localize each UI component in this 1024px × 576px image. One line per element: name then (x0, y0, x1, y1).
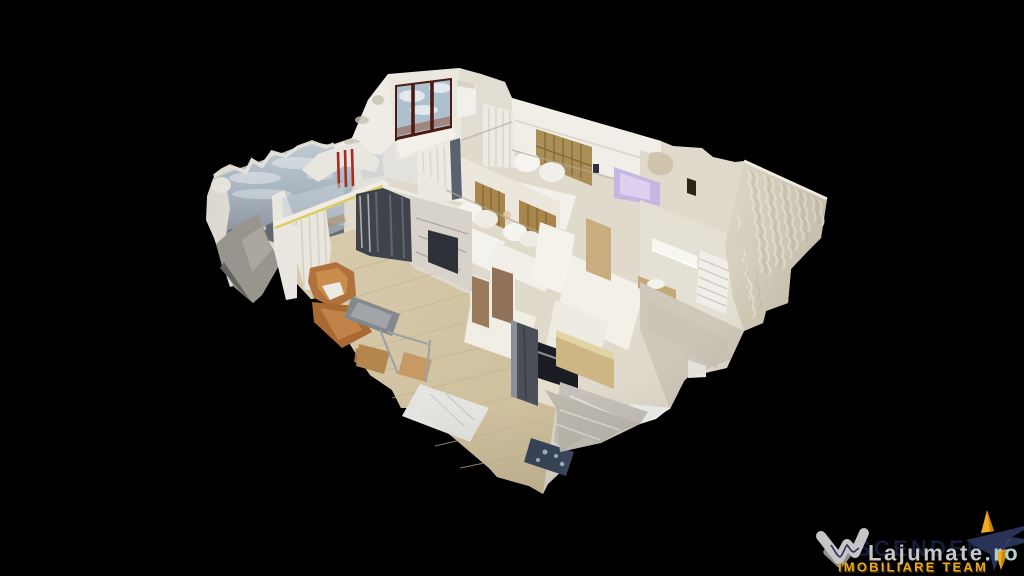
svg-text:IMOBILIARE TEAM: IMOBILIARE TEAM (838, 560, 988, 575)
